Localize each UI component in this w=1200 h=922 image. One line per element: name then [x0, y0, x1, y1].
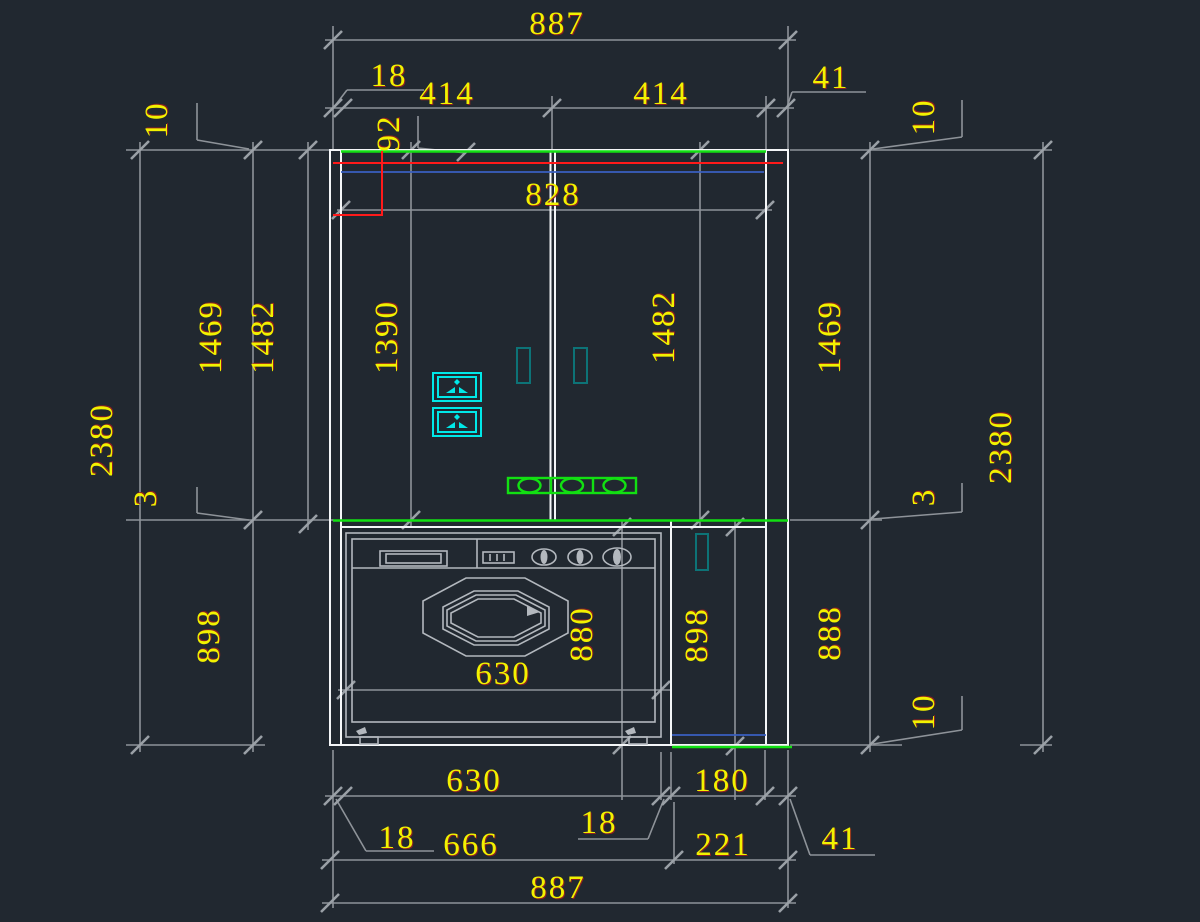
dim-bottom-left-thickness: 18 [379, 820, 416, 856]
dim-bottom-right-thickness: 41 [822, 821, 859, 857]
washer-knob-icons [532, 548, 631, 566]
socket-icon-1 [433, 373, 481, 401]
cad-drawing-canvas[interactable]: 887 18 41 414 414 92 828 10 1469 1482 23… [0, 0, 1200, 922]
dim-top-inner-width: 828 [525, 177, 581, 213]
dim-left-counter-gap: 3 [128, 489, 164, 508]
dim-right-counter-gap: 3 [906, 488, 942, 507]
dim-right-total-height: 2380 [983, 410, 1019, 484]
door-handle-lower [696, 534, 708, 570]
dim-top-right-thickness: 41 [813, 60, 850, 96]
dim-top-overall: 887 [529, 6, 585, 42]
cad-viewport[interactable]: 887 18 41 414 414 92 828 10 1469 1482 23… [0, 0, 1200, 922]
dim-bottom-overall: 887 [530, 870, 586, 906]
washing-machine [346, 533, 661, 744]
door-handle-right [574, 348, 587, 383]
cabinet-outline [330, 150, 788, 745]
dim-left-upper-height: 1469 [193, 300, 229, 374]
dim-bottom-washer-width: 630 [446, 763, 502, 799]
dim-right-upper-height: 1469 [812, 300, 848, 374]
fixtures [433, 348, 708, 570]
dim-mid-lower-height: 898 [679, 607, 715, 663]
dim-mid-door-height: 1390 [369, 300, 405, 374]
dim-bottom-right-span: 221 [695, 827, 751, 863]
dim-washer-door-width: 630 [475, 656, 531, 692]
dim-right-gap-bottom: 10 [906, 694, 942, 731]
dim-left-total-height: 2380 [84, 403, 120, 477]
vent-grille-icon [508, 478, 636, 493]
dim-washer-height: 880 [564, 606, 600, 662]
dim-left-upper-height-alt: 1482 [245, 300, 281, 374]
dim-left-gap-top: 10 [139, 102, 175, 139]
dim-mid-door-height-right: 1482 [646, 290, 682, 364]
dim-right-gap-top: 10 [906, 99, 942, 136]
dim-top-left-thickness: 18 [371, 58, 408, 94]
dim-left-lower-height: 898 [191, 608, 227, 664]
service-lines [333, 151, 792, 747]
dim-pipe-offset: 92 [371, 115, 407, 152]
socket-icon-2 [433, 408, 481, 436]
dim-top-panel-right: 414 [633, 76, 689, 112]
washer-door [423, 578, 568, 656]
dimension-lines [126, 26, 1052, 908]
washer-feet [356, 727, 647, 744]
dim-top-panel-left: 414 [419, 76, 475, 112]
dim-right-lower-height: 888 [812, 605, 848, 661]
washer-display [483, 552, 514, 563]
dim-bottom-mid-thickness: 18 [581, 805, 618, 841]
door-handle-left [517, 348, 530, 383]
dim-bottom-right-width: 180 [694, 763, 750, 799]
dim-bottom-left-span: 666 [443, 827, 499, 863]
